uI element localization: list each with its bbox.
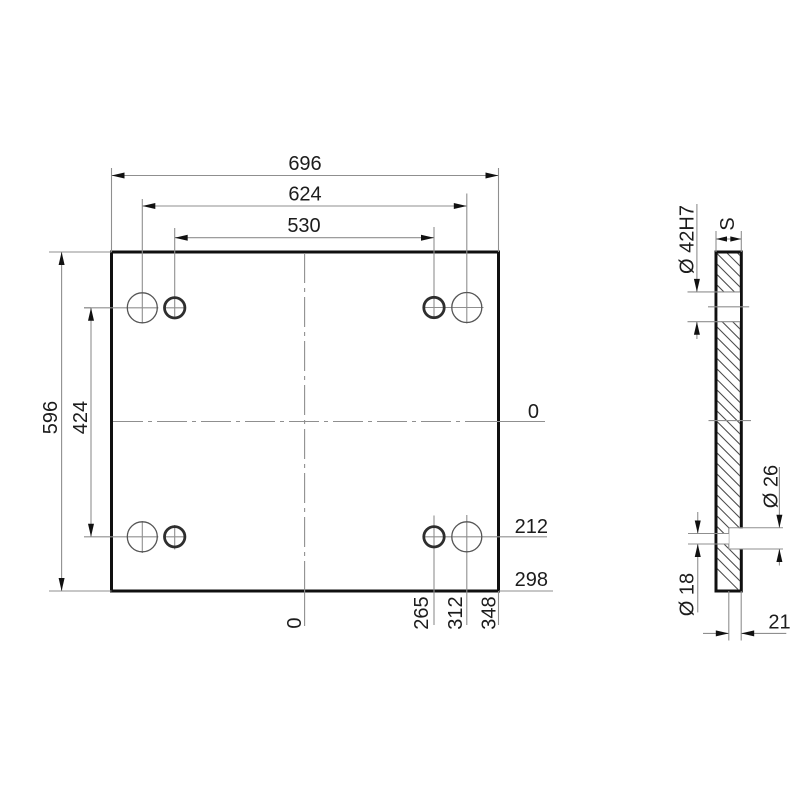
svg-text:0: 0 <box>284 617 306 628</box>
svg-text:596: 596 <box>40 401 62 434</box>
svg-text:265: 265 <box>411 596 433 629</box>
svg-text:21: 21 <box>768 612 790 634</box>
svg-text:696: 696 <box>288 153 321 175</box>
svg-text:424: 424 <box>70 401 92 434</box>
svg-text:Ø 26: Ø 26 <box>761 465 783 508</box>
svg-text:0: 0 <box>528 401 539 423</box>
svg-text:Ø 42H7: Ø 42H7 <box>677 205 699 274</box>
svg-text:Ø 18: Ø 18 <box>677 573 699 616</box>
svg-text:298: 298 <box>515 569 548 591</box>
svg-text:212: 212 <box>515 516 548 538</box>
svg-text:624: 624 <box>288 184 321 206</box>
svg-text:348: 348 <box>479 596 501 629</box>
svg-text:312: 312 <box>445 596 467 629</box>
svg-text:530: 530 <box>287 215 320 237</box>
svg-text:S: S <box>717 217 739 230</box>
